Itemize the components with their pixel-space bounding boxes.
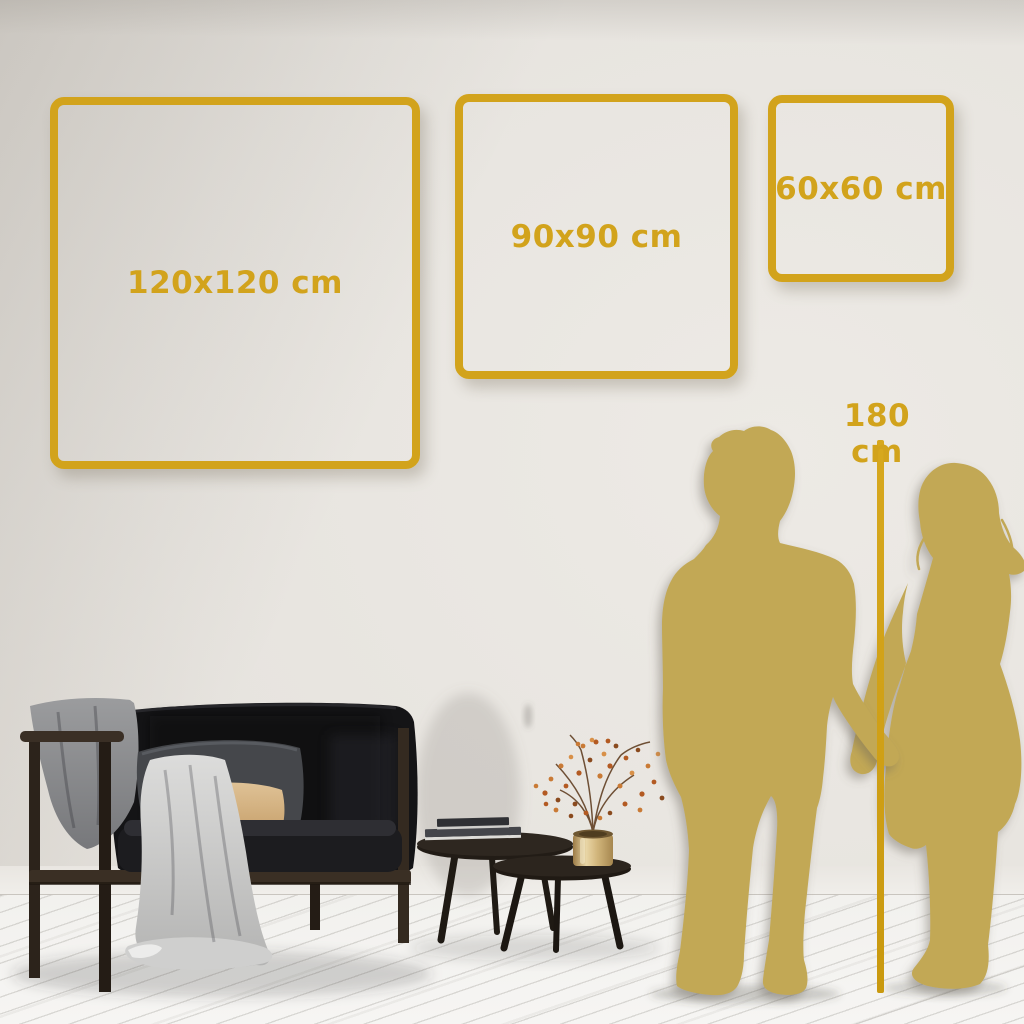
couple-silhouette [0,0,1024,1024]
man-silhouette [662,426,899,995]
height-label: 180 cm [814,398,940,470]
wall-art-size-guide: 120x120 cm 90x90 cm 60x60 cm 180 cm [0,0,1024,1024]
height-ruler-line [877,440,884,993]
man-floor-shadow [650,985,840,1003]
